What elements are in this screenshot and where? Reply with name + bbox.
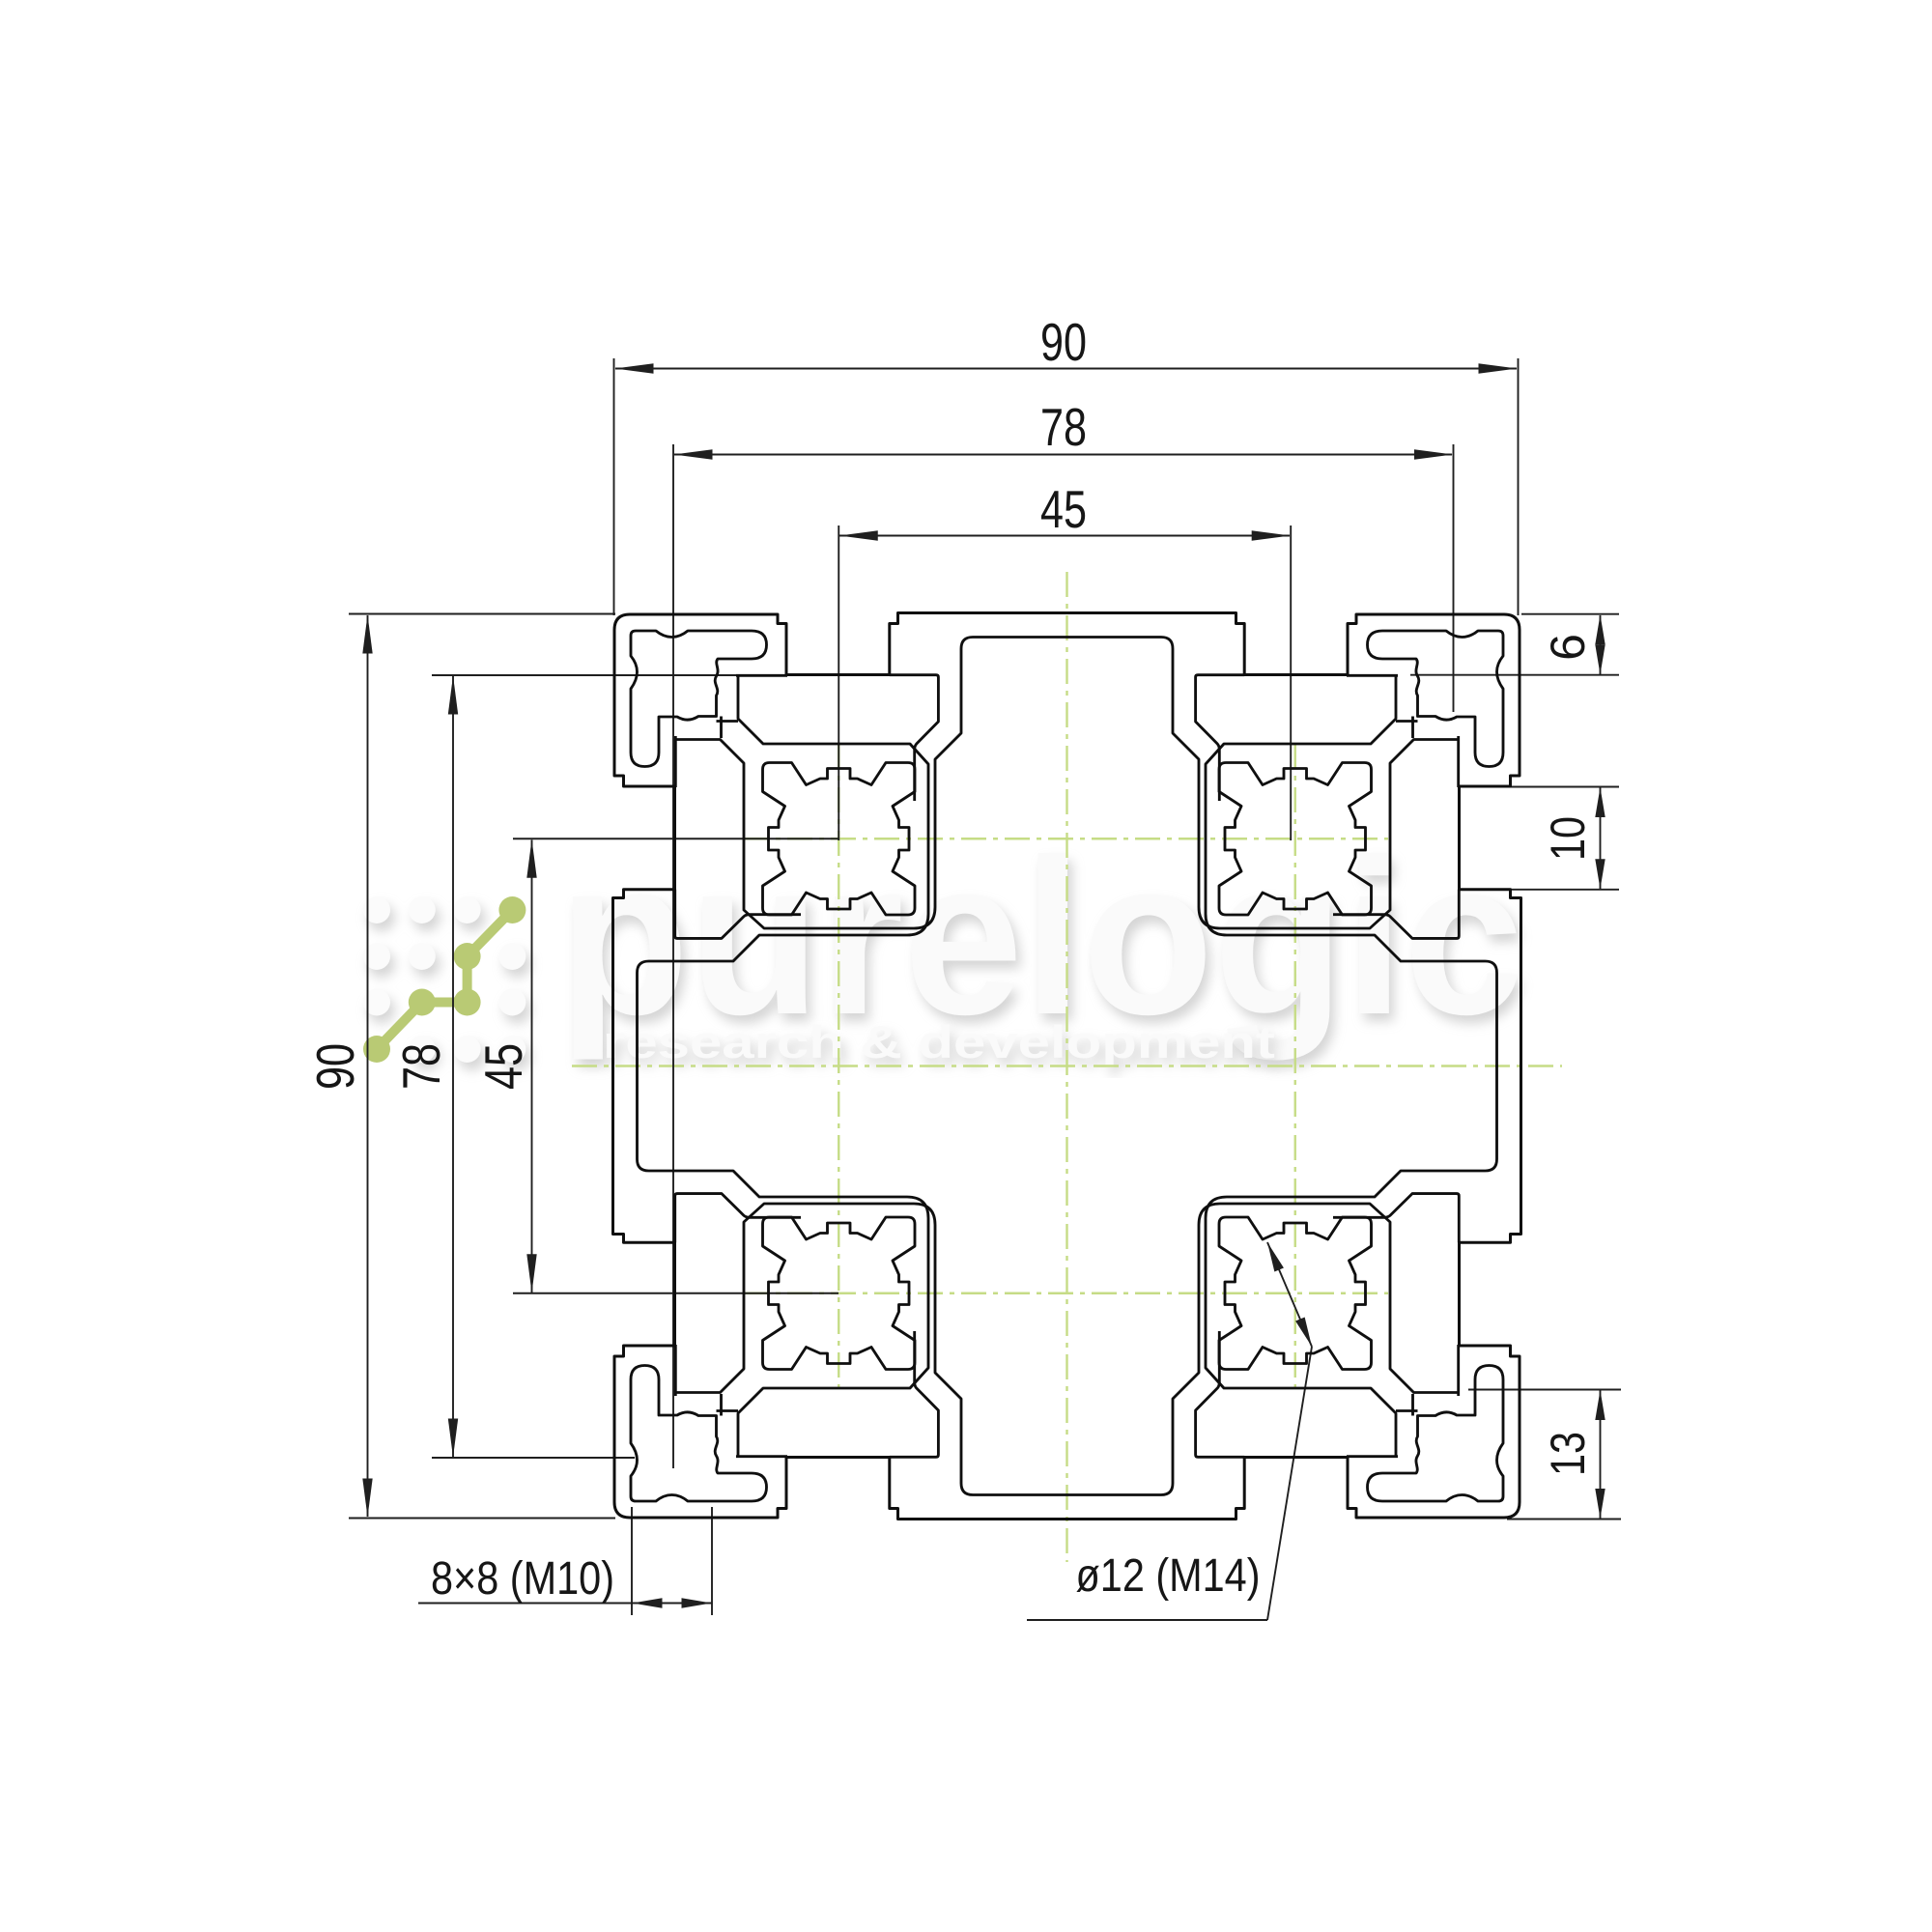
svg-text:8×8 (M10): 8×8 (M10) — [431, 1553, 614, 1605]
svg-text:90: 90 — [1040, 312, 1087, 372]
svg-text:13: 13 — [1541, 1432, 1595, 1476]
svg-text:90: 90 — [305, 1043, 365, 1090]
svg-text:45: 45 — [1040, 479, 1087, 539]
svg-text:ø12 (M14): ø12 (M14) — [1076, 1550, 1261, 1602]
svg-text:6: 6 — [1541, 634, 1595, 661]
svg-text:78: 78 — [391, 1043, 451, 1090]
svg-text:45: 45 — [473, 1043, 533, 1090]
svg-text:10: 10 — [1541, 816, 1595, 861]
svg-text:research & development: research & development — [603, 1016, 1275, 1067]
svg-text:78: 78 — [1040, 397, 1087, 457]
